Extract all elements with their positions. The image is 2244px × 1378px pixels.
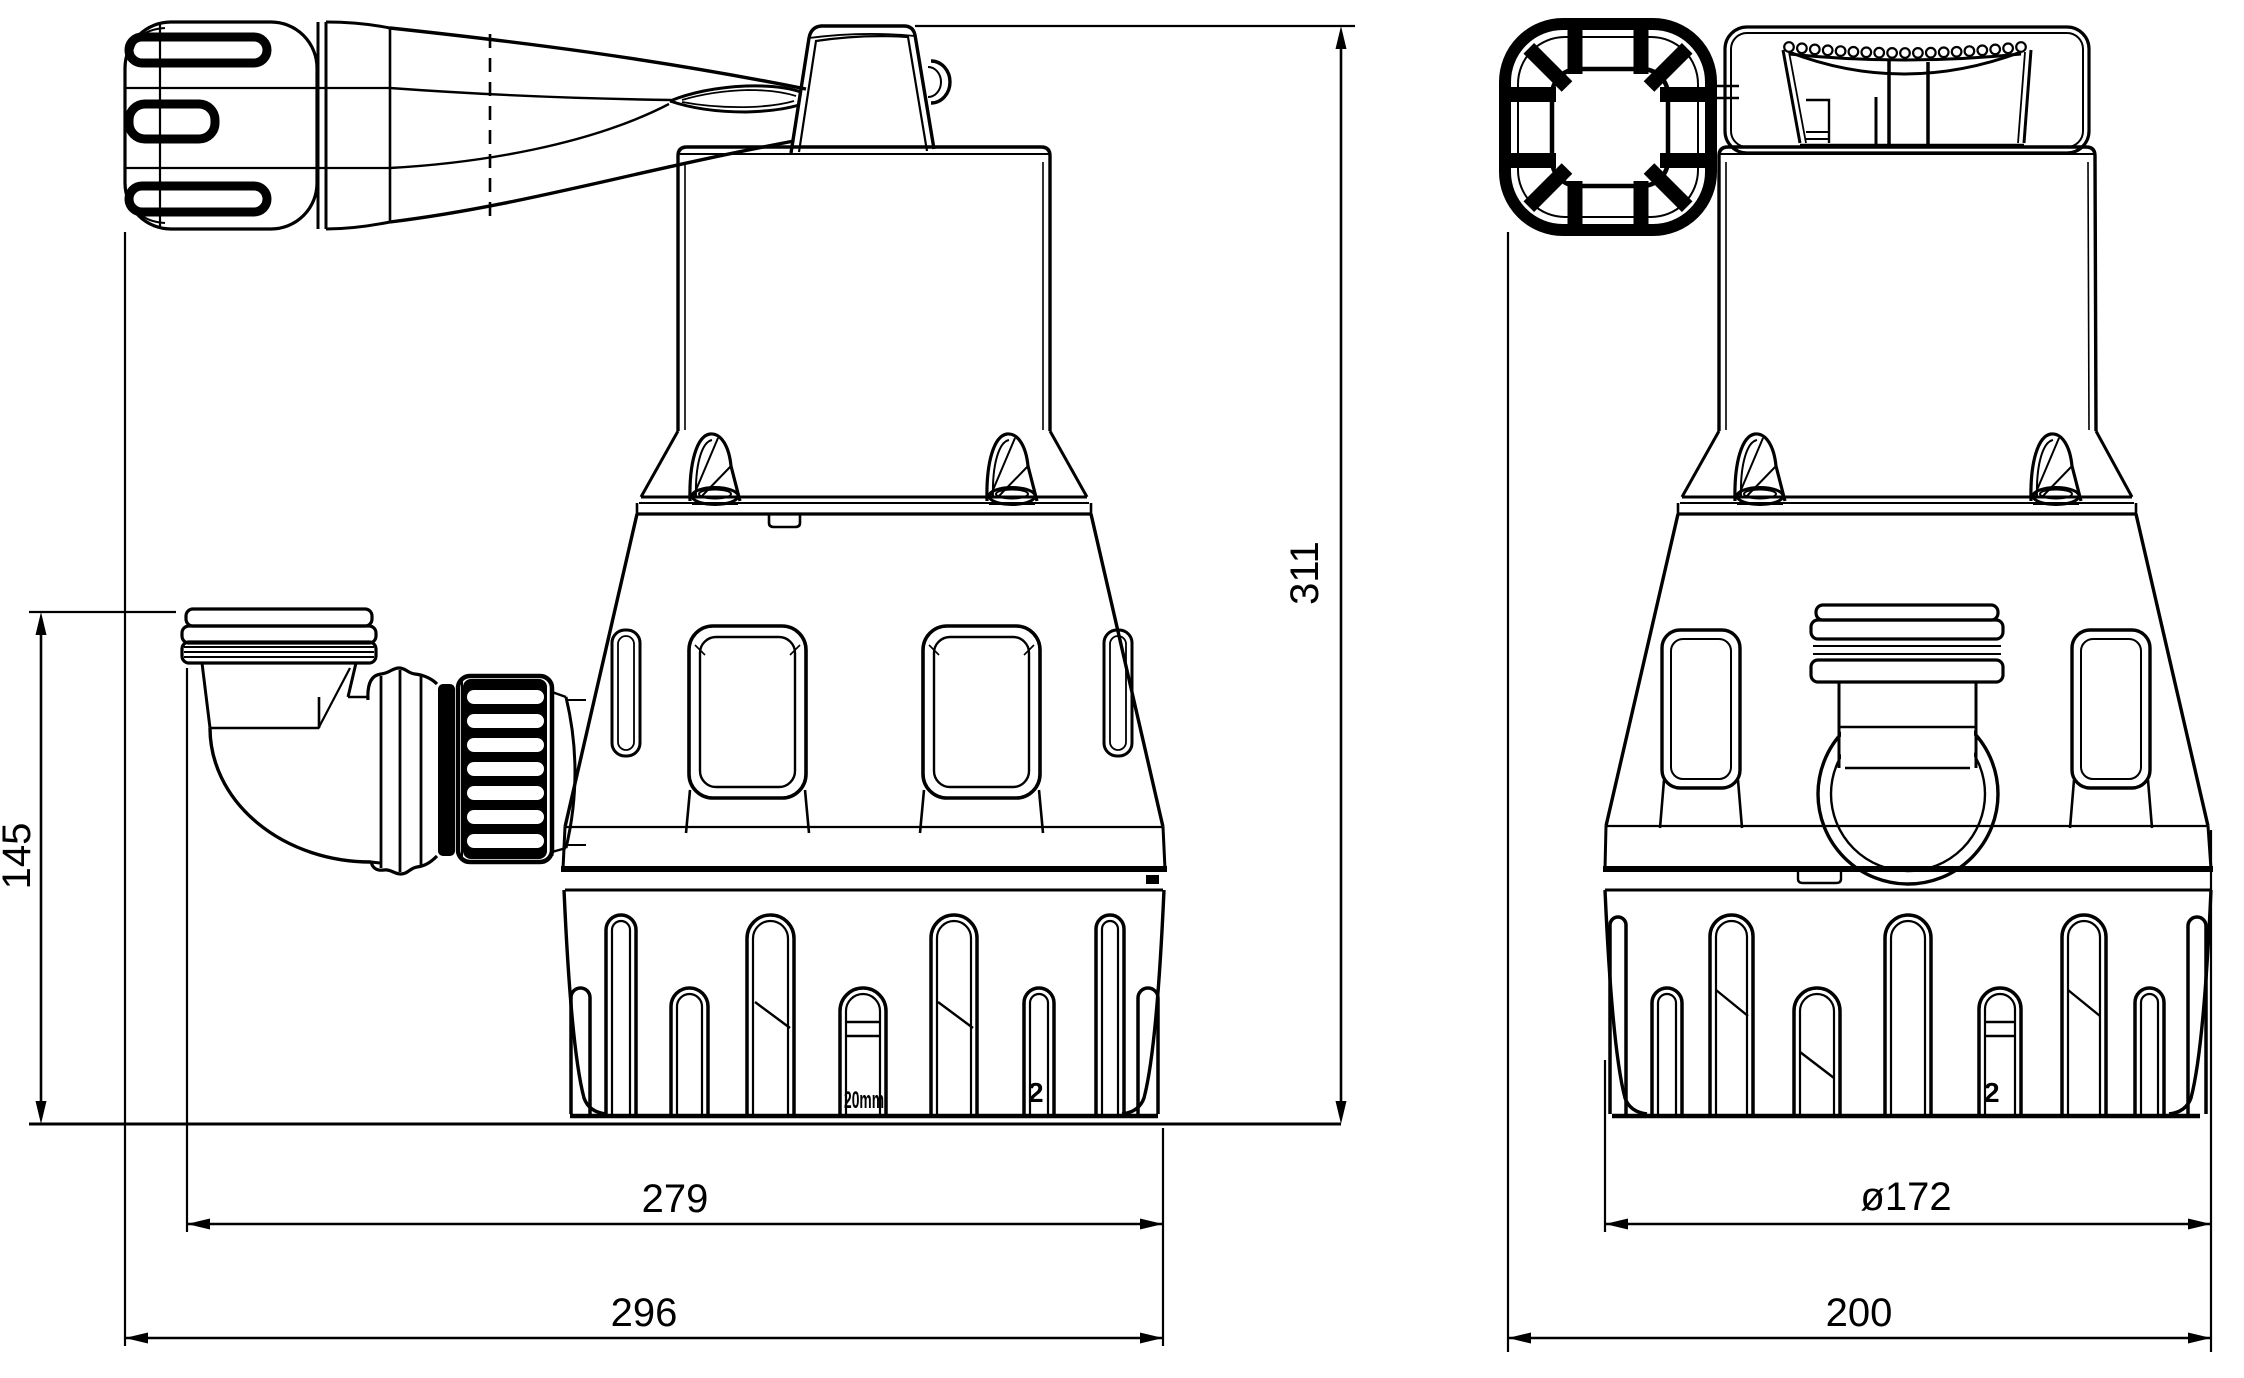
svg-text:20mm: 20mm	[844, 1087, 884, 1114]
svg-text:145: 145	[0, 823, 39, 890]
svg-text:2: 2	[1028, 1077, 1044, 1108]
svg-text:311: 311	[1283, 541, 1327, 605]
svg-text:2: 2	[1984, 1077, 2000, 1108]
svg-text:296: 296	[611, 1291, 678, 1335]
svg-text:200: 200	[1826, 1291, 1893, 1335]
svg-text:279: 279	[642, 1177, 709, 1221]
svg-text:ø172: ø172	[1860, 1175, 1951, 1219]
